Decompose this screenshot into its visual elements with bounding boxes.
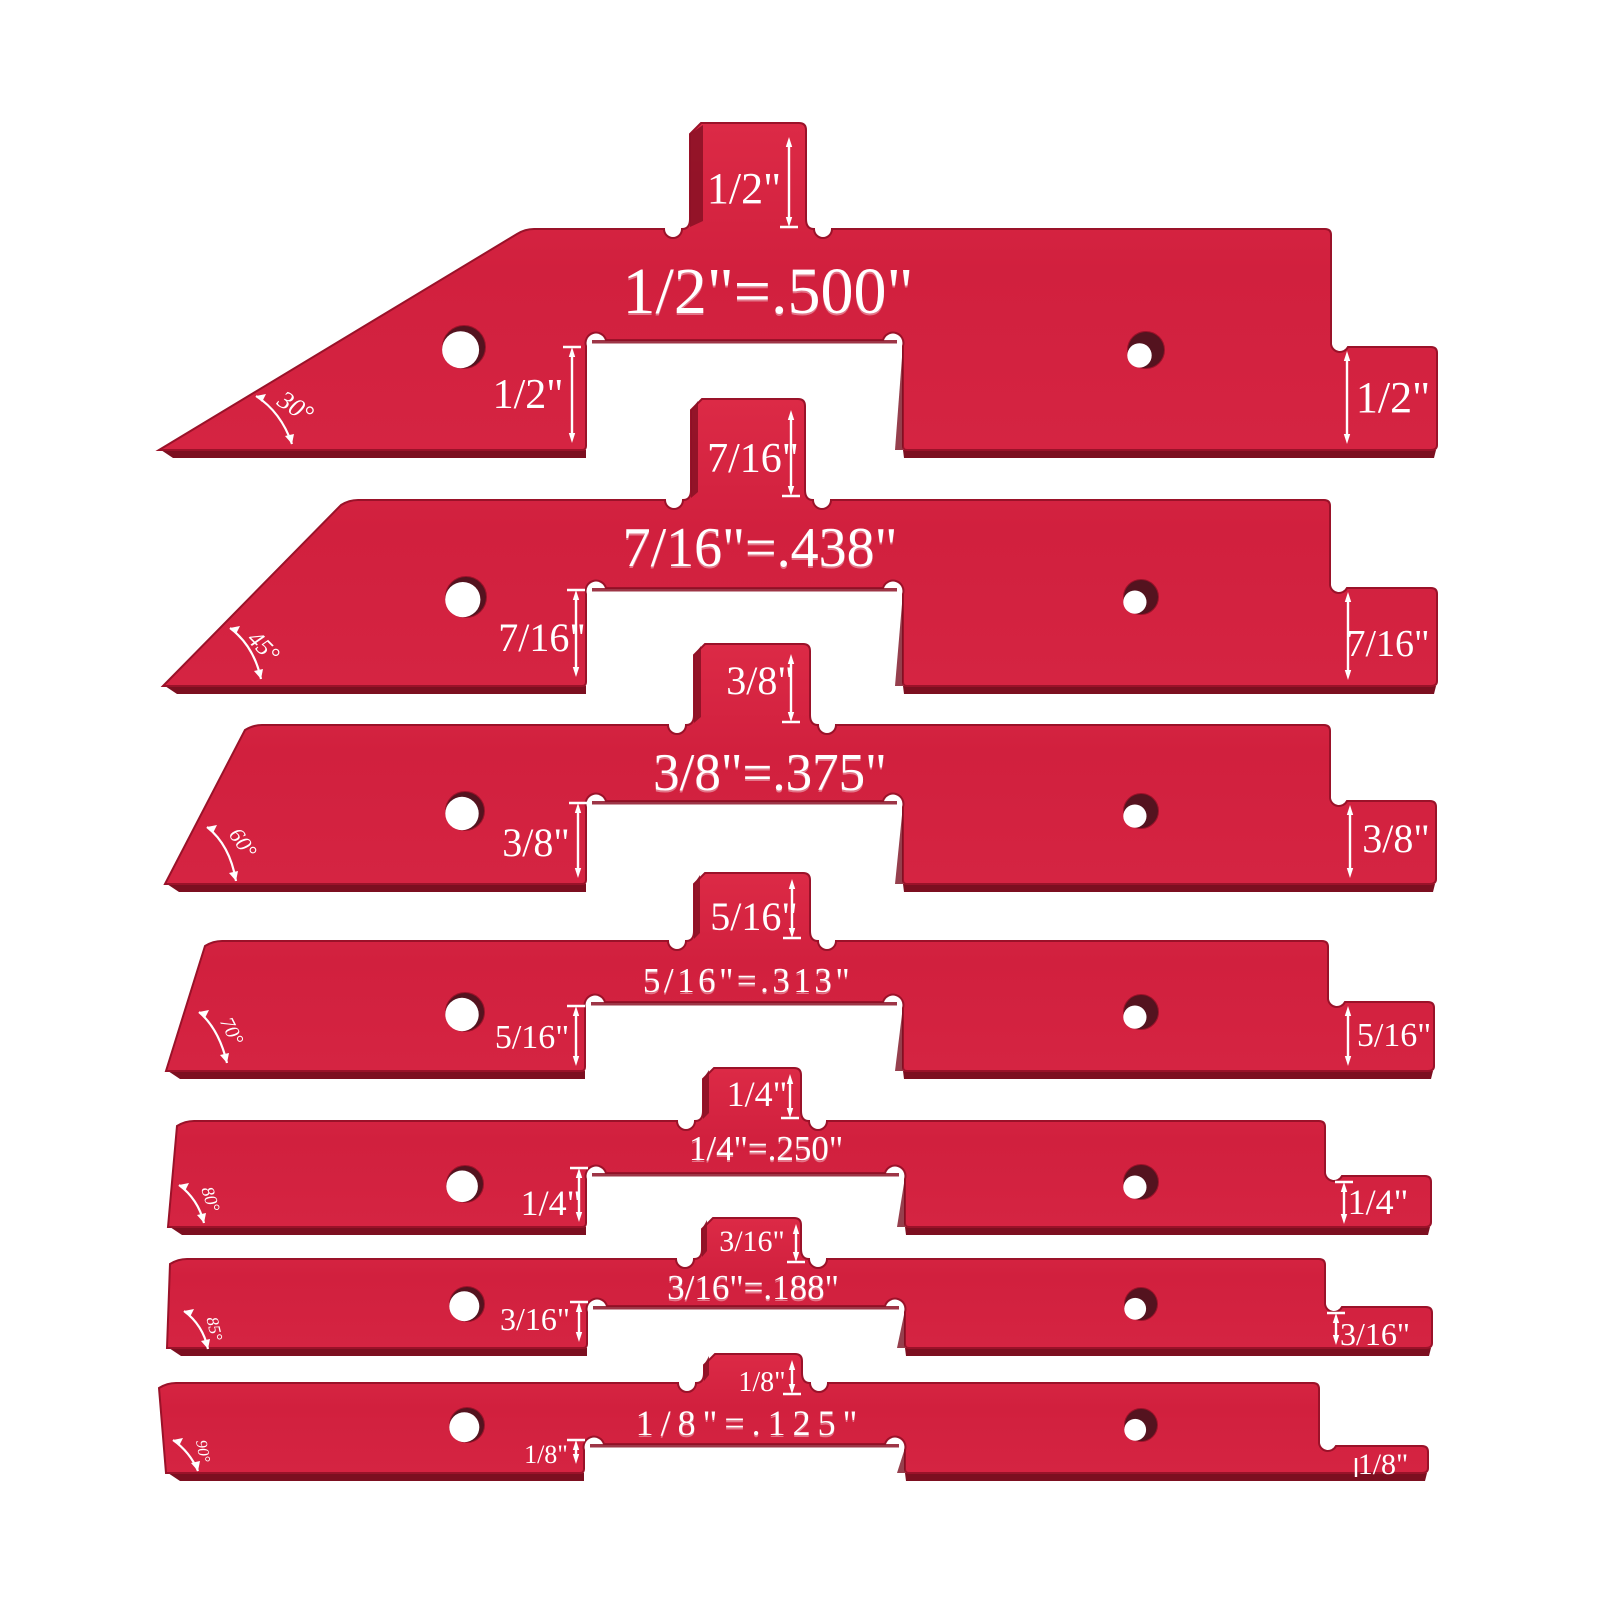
svg-text:5/16"=.313": 5/16"=.313"	[643, 961, 853, 1000]
svg-text:1/4"=.250": 1/4"=.250"	[689, 1129, 843, 1168]
svg-text:3/16": 3/16"	[1340, 1316, 1410, 1352]
svg-text:1/8": 1/8"	[738, 1367, 785, 1398]
svg-text:1/8"=.125": 1/8"=.125"	[636, 1403, 865, 1443]
svg-text:1/4": 1/4"	[521, 1183, 582, 1223]
svg-text:5/16": 5/16"	[495, 1019, 569, 1056]
svg-text:1/2": 1/2"	[493, 372, 564, 418]
svg-text:5/16": 5/16"	[1357, 1017, 1431, 1054]
svg-text:1/2": 1/2"	[1356, 373, 1430, 422]
svg-text:1/4": 1/4"	[727, 1074, 788, 1114]
svg-text:3/16"=.188": 3/16"=.188"	[667, 1268, 839, 1307]
svg-text:7/16": 7/16"	[498, 615, 585, 660]
svg-text:1/8": 1/8"	[524, 1440, 568, 1469]
svg-text:3/8": 3/8"	[726, 658, 793, 703]
svg-text:3/8": 3/8"	[502, 820, 569, 865]
svg-text:7/16": 7/16"	[1346, 623, 1429, 665]
svg-text:3/16": 3/16"	[500, 1301, 570, 1337]
svg-text:1/2": 1/2"	[707, 164, 781, 213]
svg-text:1/2"=.500": 1/2"=.500"	[623, 255, 914, 328]
svg-text:3/8": 3/8"	[1362, 816, 1429, 861]
svg-text:1/4": 1/4"	[1348, 1182, 1409, 1222]
svg-text:5/16": 5/16"	[710, 894, 797, 939]
svg-text:3/8"=.375": 3/8"=.375"	[653, 744, 887, 802]
svg-text:3/16": 3/16"	[719, 1225, 785, 1258]
svg-text:7/16"=.438": 7/16"=.438"	[623, 517, 898, 579]
svg-text:7/16": 7/16"	[707, 436, 799, 482]
svg-text:1/8": 1/8"	[1358, 1448, 1409, 1481]
